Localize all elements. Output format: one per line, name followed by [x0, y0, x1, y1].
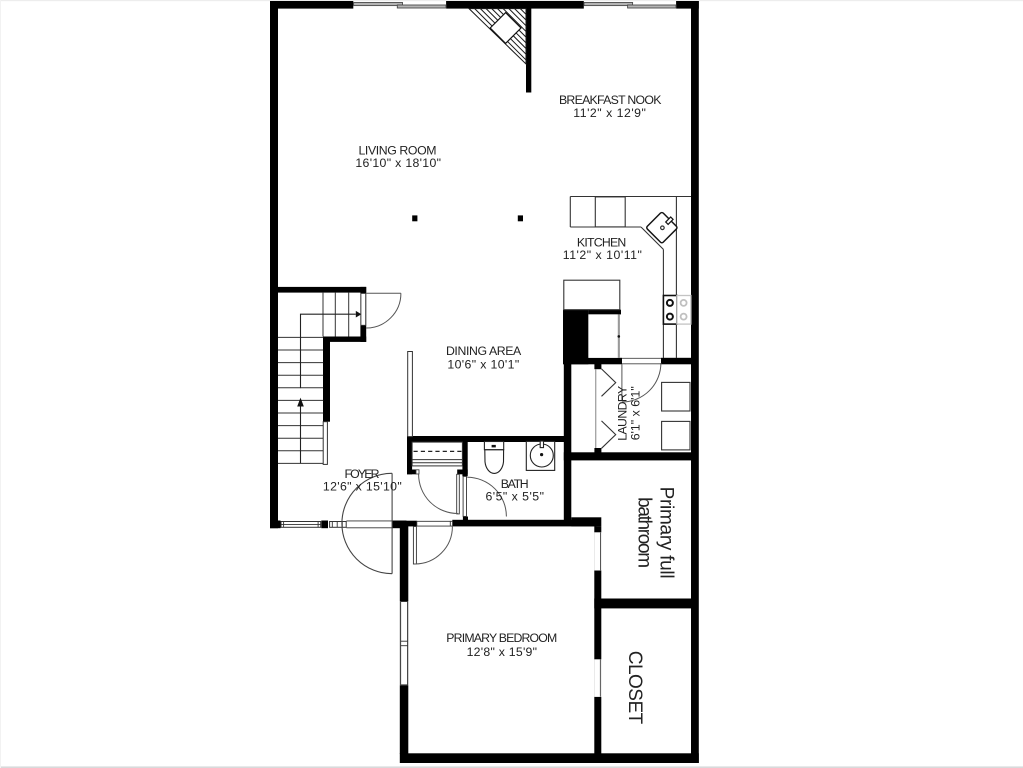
svg-text:12'8" x 15'9": 12'8" x 15'9" [467, 645, 537, 659]
svg-text:6'5" x 5'5": 6'5" x 5'5" [485, 490, 544, 504]
svg-text:BREAKFAST NOOK: BREAKFAST NOOK [559, 93, 662, 107]
svg-text:LAUNDRY: LAUNDRY [615, 386, 629, 441]
svg-text:PRIMARY BEDROOM: PRIMARY BEDROOM [446, 631, 557, 645]
svg-text:10'6" x 10'1": 10'6" x 10'1" [447, 358, 519, 372]
svg-text:CLOSET: CLOSET [624, 651, 645, 725]
svg-text:Primary full: Primary full [655, 487, 676, 579]
svg-text:12'6" x 15'10": 12'6" x 15'10" [323, 480, 402, 494]
svg-text:11'2" x 12'9": 11'2" x 12'9" [573, 106, 646, 120]
svg-text:bathroom: bathroom [634, 497, 655, 568]
svg-text:11'2" x 10'11": 11'2" x 10'11" [563, 248, 642, 262]
svg-text:16'10" x 18'10": 16'10" x 18'10" [355, 156, 441, 170]
svg-text:DINING AREA: DINING AREA [446, 344, 522, 358]
svg-text:6'1" x 6'1": 6'1" x 6'1" [629, 386, 643, 440]
